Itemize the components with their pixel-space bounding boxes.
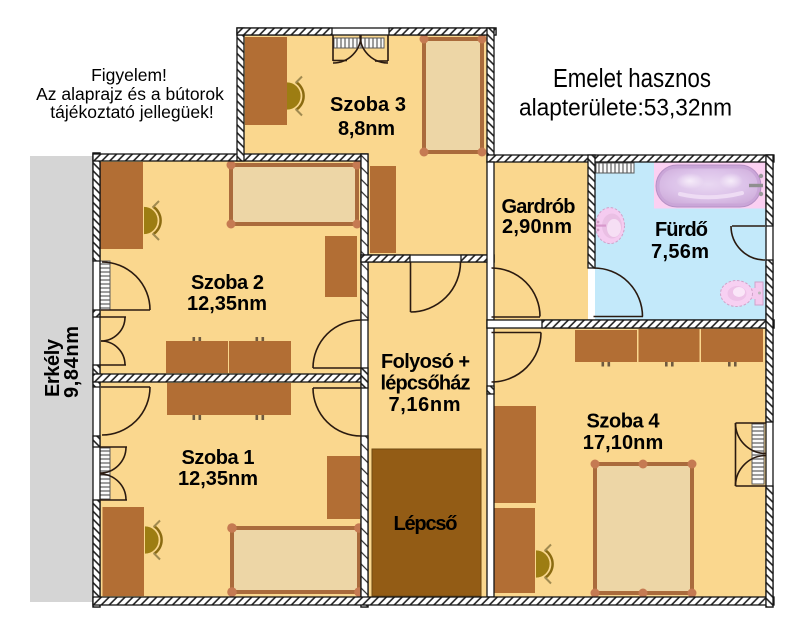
svg-text:Szoba 2: Szoba 2	[191, 272, 264, 294]
svg-text:2,90nm: 2,90nm	[502, 216, 572, 238]
svg-text:7,56m: 7,56m	[651, 241, 709, 263]
svg-text:Emelet hasznos: Emelet hasznos	[553, 65, 711, 93]
svg-text:Gardrób: Gardrób	[502, 196, 576, 218]
svg-text:7,16nm: 7,16nm	[389, 394, 461, 416]
svg-text:Fürdő: Fürdő	[655, 219, 708, 241]
svg-text:tájékoztató jellegüek!: tájékoztató jellegüek!	[50, 102, 213, 122]
svg-text:9,84nm: 9,84nm	[61, 326, 83, 398]
svg-text:Figyelem!: Figyelem!	[91, 65, 167, 85]
svg-text:8,8nm: 8,8nm	[338, 118, 395, 140]
svg-text:Folyosó +: Folyosó +	[381, 351, 470, 373]
svg-text:Lépcső: Lépcső	[394, 513, 458, 535]
svg-text:Szoba 4: Szoba 4	[587, 411, 661, 433]
svg-text:12,35nm: 12,35nm	[187, 293, 267, 315]
svg-text:lépcsőház: lépcsőház	[381, 373, 471, 395]
svg-text:alapterülete:53,32nm: alapterülete:53,32nm	[519, 95, 732, 122]
svg-text:Az alaprajz és a bútorok: Az alaprajz és a bútorok	[36, 84, 224, 104]
svg-text:17,10nm: 17,10nm	[583, 432, 664, 454]
svg-text:12,35nm: 12,35nm	[178, 468, 258, 490]
svg-text:Szoba 1: Szoba 1	[182, 447, 255, 469]
svg-text:Szoba 3: Szoba 3	[330, 94, 406, 116]
